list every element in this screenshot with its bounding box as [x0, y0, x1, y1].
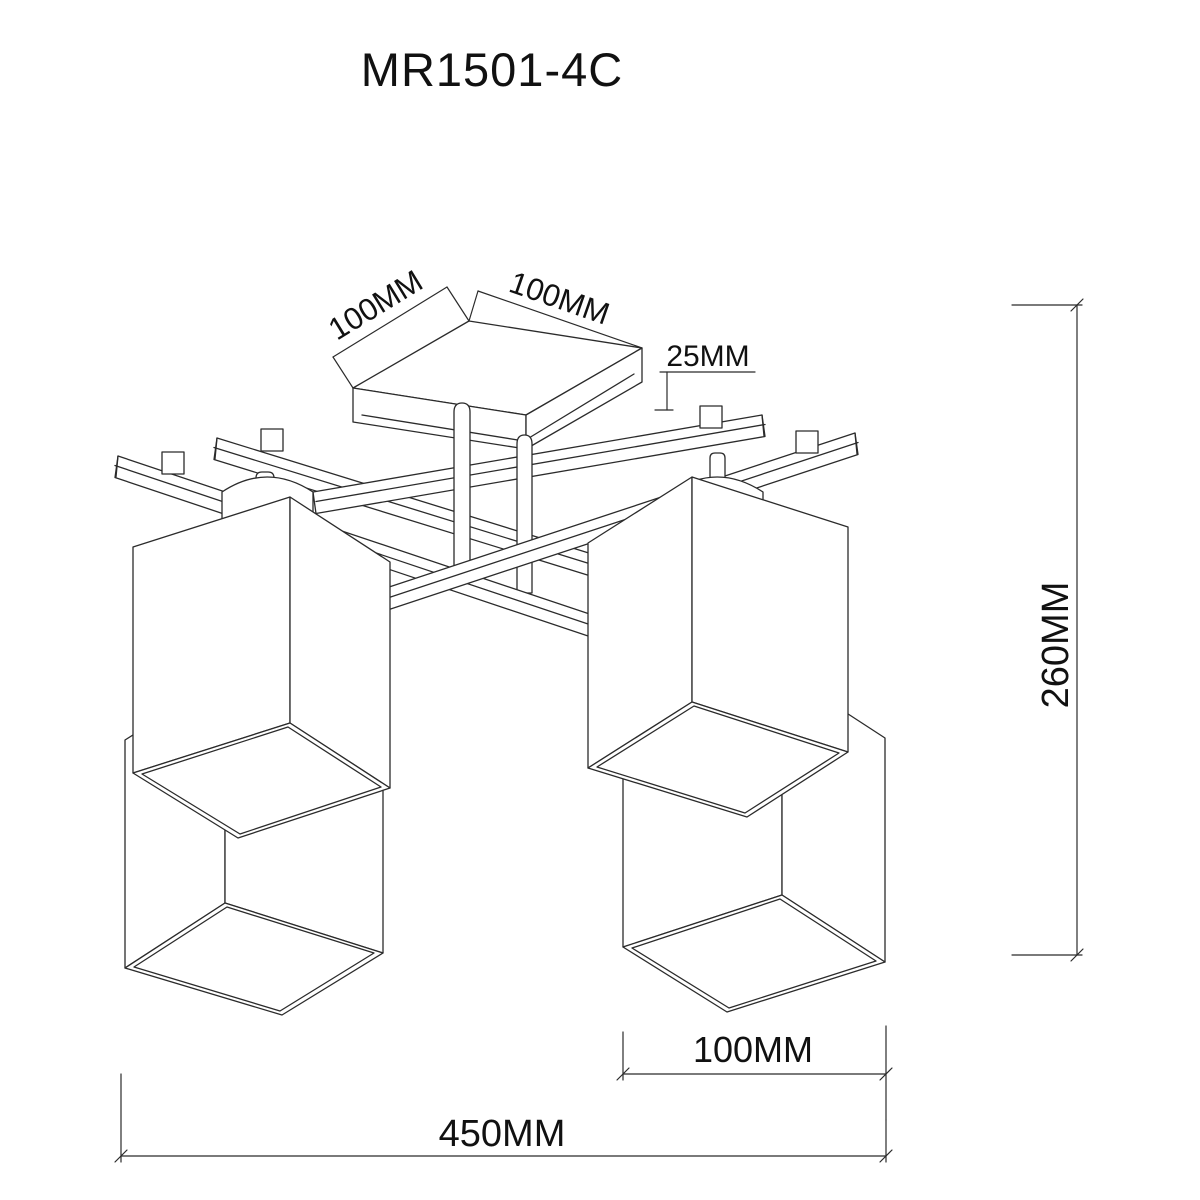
dimension-canopy-thickness: 25MM — [655, 340, 755, 410]
dim-canopy-thickness-label: 25MM — [666, 340, 749, 373]
dim-canopy-right-label: 100MM — [505, 265, 614, 332]
drawing-title: MR1501-4C — [361, 43, 623, 96]
technical-drawing-page: 100MM 100MM 25MM 260MM 100MM 450MM M — [0, 0, 1200, 1200]
ceiling-lamp-technical-drawing: 100MM 100MM 25MM 260MM 100MM 450MM M — [0, 0, 1200, 1200]
shade-upper-left — [133, 497, 390, 838]
dimension-overall-width: 450MM — [115, 1074, 892, 1162]
arm-end-cap — [162, 452, 184, 474]
arm-end-cap — [796, 431, 818, 453]
arm-end-cap — [261, 429, 283, 451]
hanger-rod-left — [454, 403, 470, 572]
shade-upper-right — [588, 477, 848, 817]
dim-overall-height-label: 260MM — [1035, 582, 1077, 709]
canopy — [353, 321, 642, 449]
dimension-shade-width: 100MM — [617, 1026, 892, 1120]
dimension-overall-height: 260MM — [1012, 299, 1083, 961]
arm-end-cap — [700, 406, 722, 428]
dim-canopy-left-label: 100MM — [322, 263, 428, 347]
dim-shade-width-label: 100MM — [693, 1029, 813, 1070]
hanger-rod-right — [517, 435, 532, 593]
dim-overall-width-label: 450MM — [439, 1113, 566, 1155]
